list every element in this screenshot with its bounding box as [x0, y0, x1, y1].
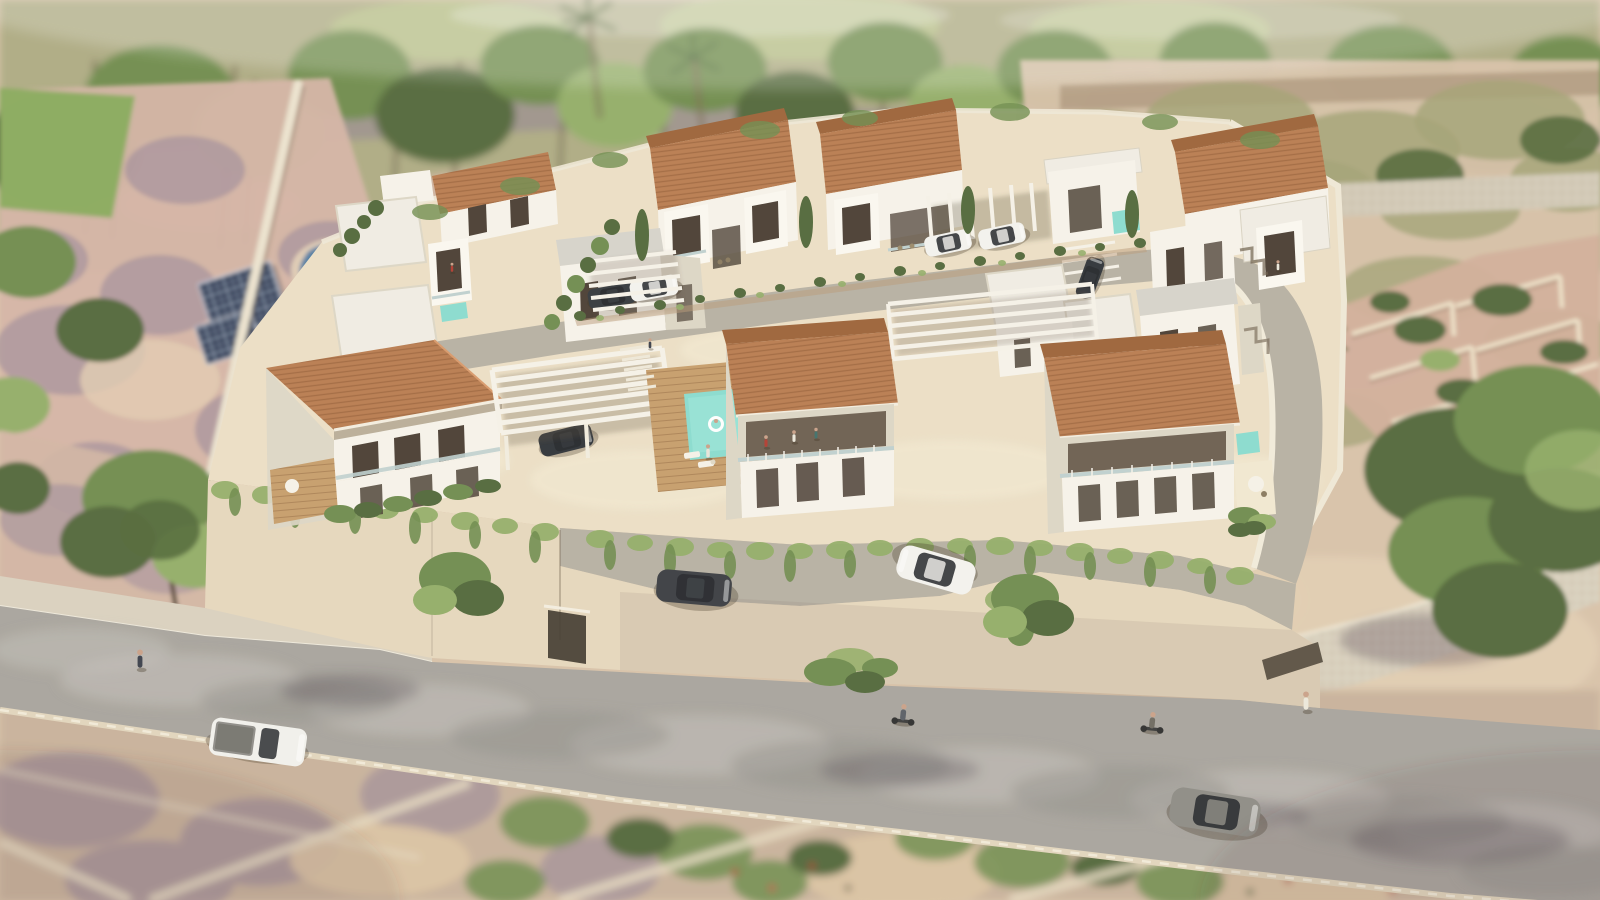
render-viewport: Bird's-eye photorealistic 3D rendering o… — [0, 0, 1600, 900]
aerial-render-image: Bird's-eye photorealistic 3D rendering o… — [0, 0, 1600, 900]
color-grade — [0, 0, 1600, 900]
